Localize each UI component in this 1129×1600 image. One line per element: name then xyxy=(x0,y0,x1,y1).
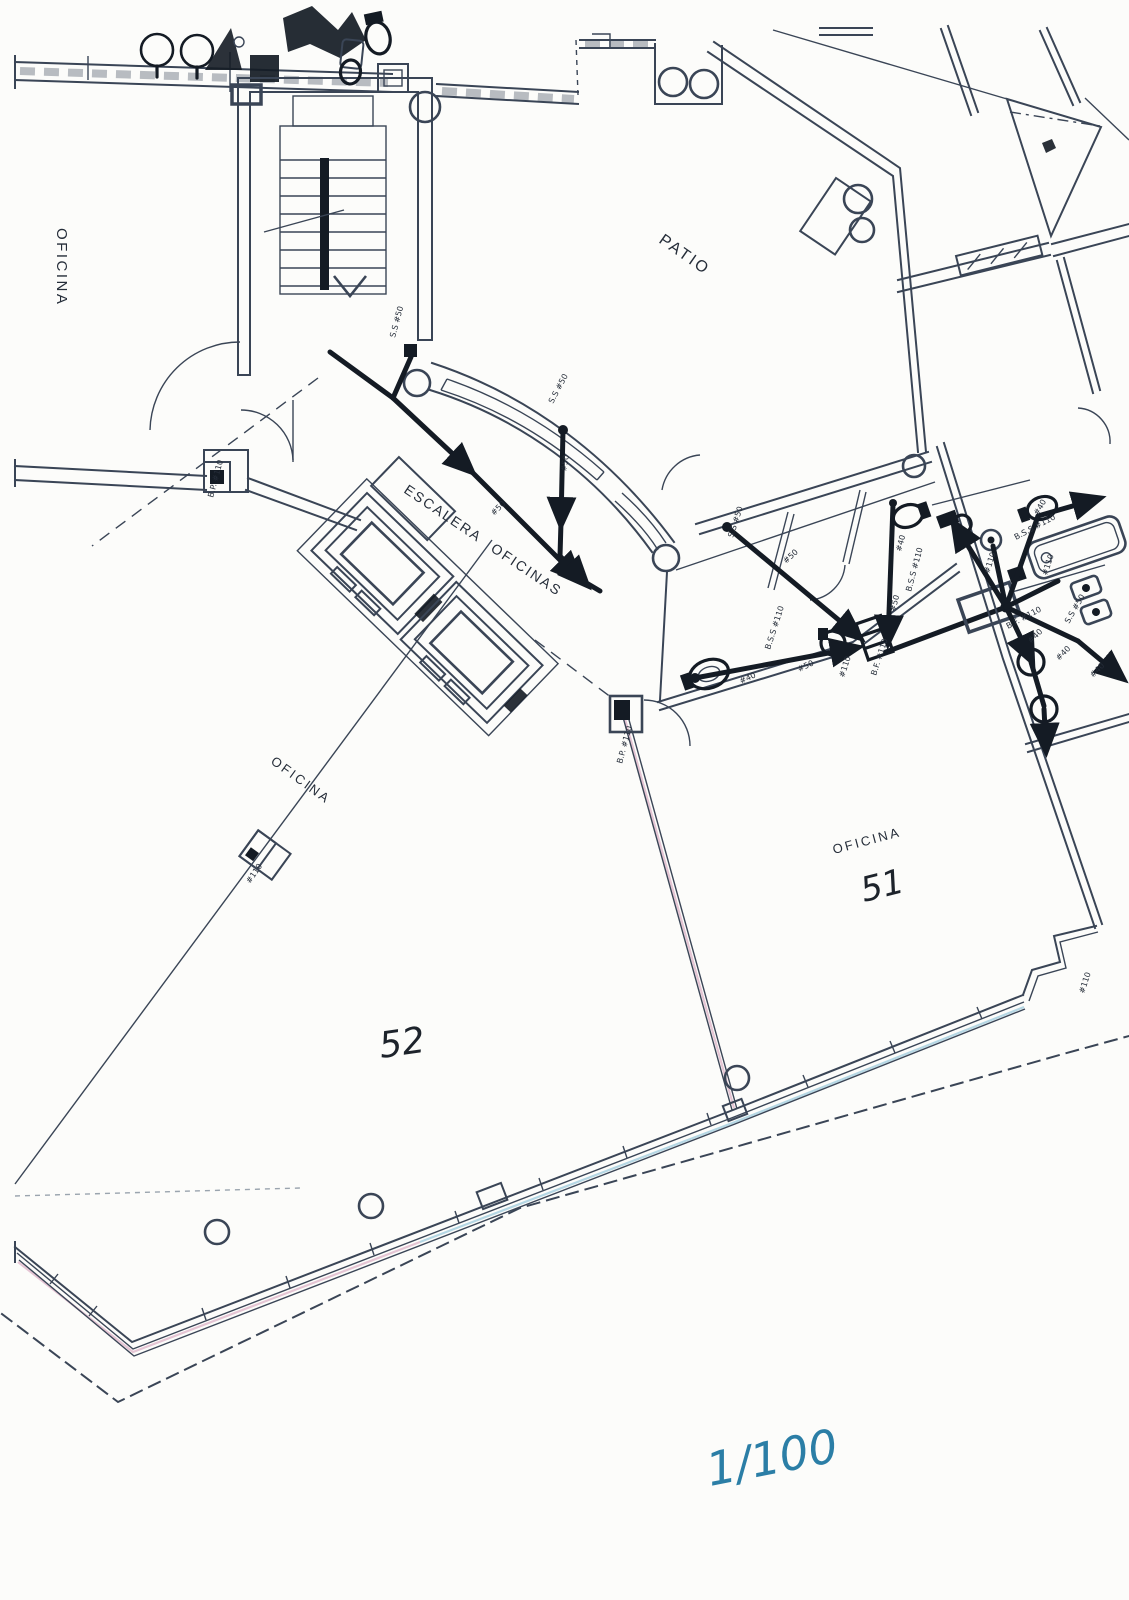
pipe-annotation: #110 xyxy=(1077,971,1092,995)
pipe-annotation: #110 xyxy=(837,655,852,679)
room-label-oficina-left: OFICINA xyxy=(53,228,70,306)
room-label-patio: PATIO xyxy=(656,231,713,278)
pipe-annotation: #40 xyxy=(894,534,907,553)
triangle-shaft xyxy=(1007,99,1101,236)
basin-icon xyxy=(181,35,213,67)
pipe-circle xyxy=(850,218,874,242)
pipe-annotation: #110 xyxy=(244,862,264,885)
top-left-fixtures xyxy=(141,6,393,104)
door-arc xyxy=(662,455,700,490)
room52-boundary xyxy=(15,540,492,1184)
stair-flight xyxy=(280,126,386,294)
pipe-annotation: #40 xyxy=(1054,644,1072,662)
pipe-annotation: #50 xyxy=(559,454,571,472)
door-arc xyxy=(150,342,240,430)
left-wing-wall xyxy=(15,378,360,546)
top-wall-band xyxy=(15,52,392,92)
door-arc xyxy=(1078,408,1110,444)
stair-landing xyxy=(293,96,373,126)
pipe-annotation: S.S #50 xyxy=(547,372,570,405)
basin-icon xyxy=(141,34,173,66)
meter-box xyxy=(239,830,290,879)
scanned-floor-plan: OFICINA PATIO ESCALERA OFICINAS OFICINA … xyxy=(0,0,1129,1600)
basin-icon xyxy=(690,70,718,98)
pipe-annotation: #40 xyxy=(1026,627,1044,645)
elevator-shafts xyxy=(297,452,584,736)
pipe-annotations: S.S #50 S.S #50 #50 #50 S.S #50 #50 #40 … xyxy=(206,305,1106,994)
column xyxy=(903,455,925,477)
pipe-annotation: B.S.S #110 xyxy=(763,605,786,651)
pipe-annotation: S.S #50 xyxy=(726,505,744,538)
column xyxy=(205,1220,229,1244)
partition-51-52 xyxy=(610,696,749,1110)
elevator-shaft-2 xyxy=(399,582,543,725)
column xyxy=(653,545,679,571)
exterior-window-wall xyxy=(15,926,1098,1356)
pipe-annotation: B.S.S #110 xyxy=(904,546,924,592)
scale-note: 1/100 xyxy=(702,1418,842,1496)
wc-icon xyxy=(361,10,393,56)
basin-icon xyxy=(659,68,687,96)
wc-cluster-icon xyxy=(283,6,366,58)
room-number-52: 52 xyxy=(377,1020,428,1067)
room-label-oficina-51: OFICINA xyxy=(831,824,903,857)
column xyxy=(404,370,430,396)
column xyxy=(410,92,440,122)
boundary-dashed xyxy=(2,1036,1129,1402)
patio-walls xyxy=(708,30,1007,452)
pipe-annotation: #110 xyxy=(1040,553,1055,577)
stair-stringer xyxy=(320,158,329,290)
corridor-wall-right xyxy=(535,443,1102,928)
door-arc xyxy=(810,565,845,600)
pipe-annotation: S.S #50 xyxy=(388,305,405,338)
stairwell xyxy=(150,78,432,430)
sink-icon xyxy=(1080,599,1112,625)
column xyxy=(359,1194,383,1218)
bidet-icon xyxy=(205,28,242,70)
room-number-51: 51 xyxy=(857,861,909,910)
